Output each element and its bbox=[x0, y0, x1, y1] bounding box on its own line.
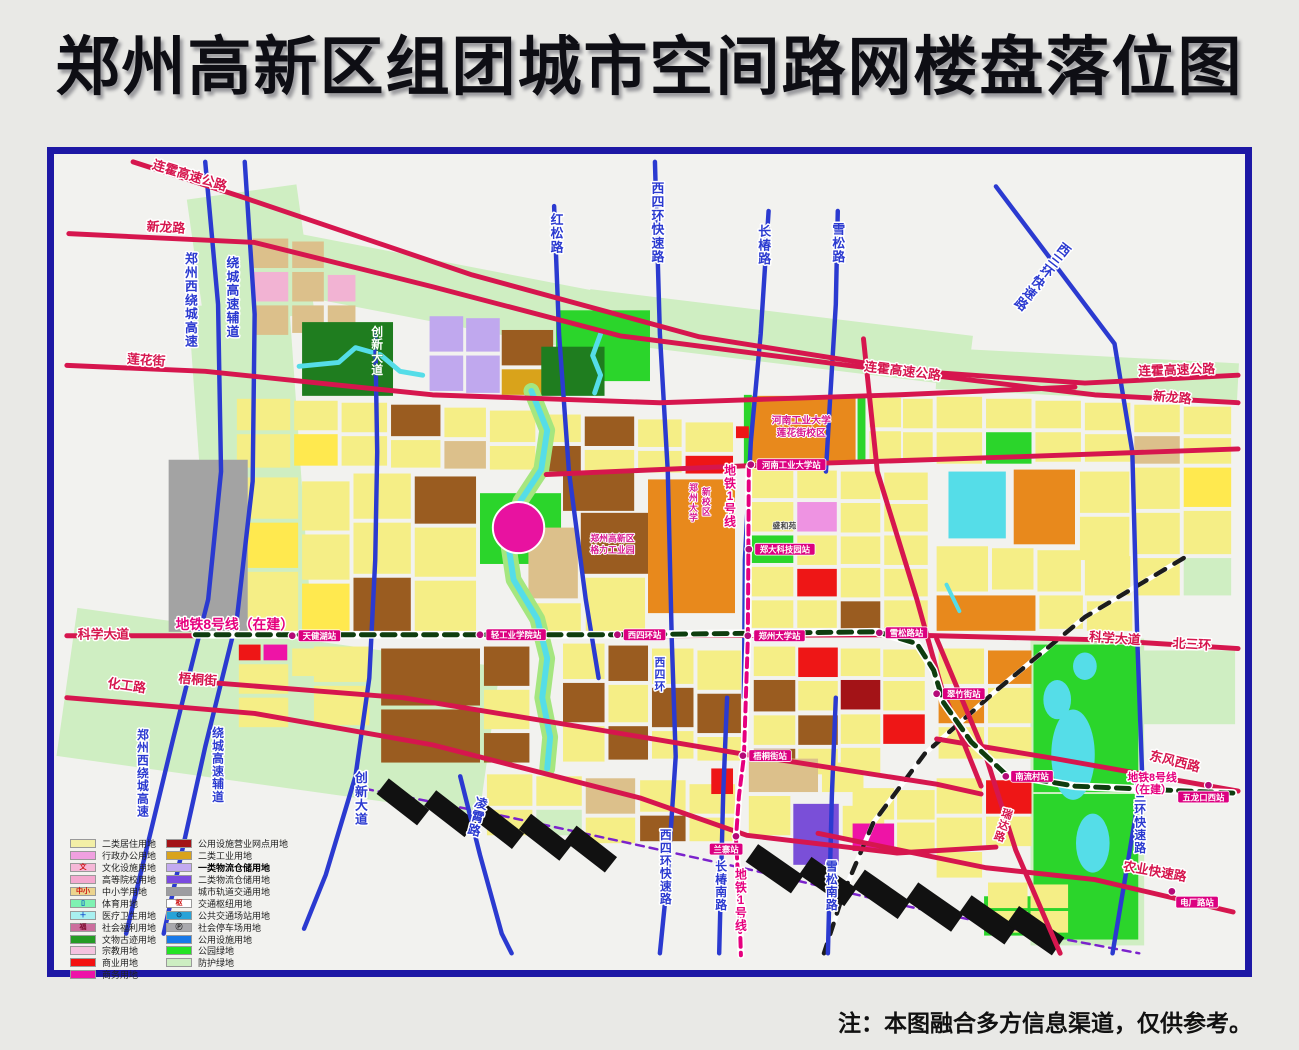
landuse-block bbox=[884, 569, 927, 597]
legend-swatch bbox=[166, 875, 192, 884]
road-label: 盛和苑 bbox=[773, 521, 797, 531]
legend-swatch bbox=[70, 935, 96, 944]
landuse-block bbox=[841, 649, 881, 677]
legend-item: 商业用地 bbox=[70, 957, 156, 969]
landuse-block bbox=[948, 472, 1005, 539]
landuse-block bbox=[937, 818, 982, 849]
legend-item: ⊙公共交通场站用地 bbox=[166, 909, 288, 921]
metro-station-dot bbox=[1168, 887, 1176, 895]
landuse-block bbox=[1184, 558, 1231, 595]
legend-item: 公用设施用地 bbox=[166, 933, 288, 945]
landuse-block bbox=[490, 446, 535, 470]
landuse-block bbox=[294, 434, 337, 465]
landuse-block bbox=[883, 681, 925, 710]
road-label: 新龙路 bbox=[146, 219, 185, 236]
landuse-block bbox=[353, 578, 410, 633]
road-label: 创新大道 bbox=[370, 325, 383, 377]
lake bbox=[1073, 652, 1097, 680]
landuse-block bbox=[466, 356, 500, 393]
road-label: 西四环 bbox=[654, 656, 665, 693]
legend-item: 行政办公用地 bbox=[70, 850, 156, 862]
metro-station-label: 雪松路站 bbox=[890, 628, 924, 638]
metro-station-dot bbox=[476, 631, 484, 639]
landuse-block bbox=[841, 714, 881, 743]
legend-item: 公用设施营业网点用地 bbox=[166, 838, 288, 850]
legend-swatch: ⊙ bbox=[166, 911, 192, 920]
legend-item: 枢交通枢纽用地 bbox=[166, 897, 288, 909]
landuse-block bbox=[752, 600, 794, 628]
legend-swatch bbox=[166, 935, 192, 944]
metro-station-label: 郑大科技园站 bbox=[760, 545, 811, 555]
metro-station-label: 兰寨站 bbox=[714, 845, 740, 855]
legend-swatch bbox=[70, 839, 96, 848]
legend-item: 高等院校用地 bbox=[70, 874, 156, 886]
lake bbox=[1043, 680, 1071, 719]
poster-page: 郑州高新区组团城市空间路网楼盘落位图 天健湖站轻工业学院站西四环站郑州大学站雪松… bbox=[0, 0, 1299, 1050]
landuse-block bbox=[1184, 407, 1231, 435]
legend-swatch bbox=[70, 851, 96, 860]
landuse-block bbox=[797, 502, 837, 531]
landuse-block bbox=[1184, 511, 1231, 554]
legend-swatch bbox=[70, 970, 96, 979]
landuse-block bbox=[1134, 468, 1179, 509]
landuse-block bbox=[586, 578, 645, 633]
landuse-block bbox=[444, 408, 486, 437]
road-label: （在建） bbox=[1128, 782, 1171, 796]
metro-station-label: 天健湖站 bbox=[303, 631, 337, 641]
legend-item: 文物古迹用地 bbox=[70, 933, 156, 945]
landuse-block bbox=[1085, 556, 1130, 595]
landuse-block bbox=[754, 647, 796, 676]
legend-symbol-icon: 福 bbox=[71, 923, 95, 932]
landuse-block bbox=[342, 403, 387, 432]
landuse-block bbox=[798, 715, 838, 744]
landuse-block bbox=[736, 426, 749, 438]
landuse-block bbox=[239, 645, 261, 661]
landuse-block bbox=[841, 472, 881, 500]
legend-item: ＋医疗卫生用地 bbox=[70, 909, 156, 921]
landuse-block bbox=[294, 401, 337, 430]
metro-station-dot bbox=[875, 629, 883, 637]
road-label: 莲花街校区 bbox=[777, 426, 827, 439]
landuse-block bbox=[353, 523, 410, 574]
road-label: 地铁8号线（在建） bbox=[176, 616, 294, 632]
landuse-block bbox=[841, 601, 881, 629]
landuse-block bbox=[1035, 401, 1080, 429]
landuse-block bbox=[487, 774, 532, 805]
landuse-block bbox=[937, 546, 988, 591]
page-title: 郑州高新区组团城市空间路网楼盘落位图 bbox=[0, 16, 1299, 108]
metro-station-label: 南流村站 bbox=[1015, 772, 1049, 782]
legend-item: 宗教用地 bbox=[70, 945, 156, 957]
landuse-block bbox=[302, 584, 349, 633]
landuse-block bbox=[484, 690, 529, 729]
road-label: 河南工业大学 bbox=[772, 413, 831, 426]
landuse-block bbox=[1134, 513, 1179, 554]
road-label: 郑州高新区 bbox=[590, 532, 635, 543]
landuse-block bbox=[1037, 550, 1080, 591]
landuse-block bbox=[253, 272, 289, 301]
metro-station-label: 西四环站 bbox=[628, 630, 662, 640]
landuse-block bbox=[1014, 470, 1075, 545]
road-label: 郑州西绕城高速 bbox=[136, 728, 149, 819]
legend-item: 福社会福利用地 bbox=[70, 921, 156, 933]
metro-station-dot bbox=[739, 752, 747, 760]
legend-label: 商务用地 bbox=[102, 968, 138, 981]
landuse-block bbox=[798, 681, 838, 710]
landuse-block bbox=[585, 416, 634, 445]
landuse-block bbox=[237, 399, 290, 430]
landuse-block bbox=[1134, 405, 1179, 433]
road-label: 科学大道 bbox=[78, 627, 130, 642]
landuse-block bbox=[797, 569, 837, 597]
legend-swatch: 中小 bbox=[70, 887, 96, 896]
landuse-block bbox=[563, 683, 605, 722]
metro-station-dot bbox=[732, 832, 740, 840]
map-frame: 天健湖站轻工业学院站西四环站郑州大学站雪松路站翠竹街站河南工业大学站郑大科技园站… bbox=[47, 147, 1252, 977]
landuse-block bbox=[988, 883, 1028, 909]
metro-station-dot bbox=[1204, 781, 1212, 789]
legend-item: 文文化设施用地 bbox=[70, 862, 156, 874]
road-label: 北三环 bbox=[1172, 636, 1211, 653]
road-label: 连霍高速公路 bbox=[1138, 361, 1216, 379]
metro-station-dot bbox=[933, 690, 941, 698]
landuse-block bbox=[292, 272, 324, 301]
legend-item: 城市轨道交通用地 bbox=[166, 886, 288, 898]
landuse-block bbox=[986, 399, 1031, 428]
legend-item: 公园绿地 bbox=[166, 945, 288, 957]
road-label: 莲花街 bbox=[127, 351, 167, 369]
legend-item: 二类物流仓储用地 bbox=[166, 874, 288, 886]
metro-station-label: 轻工业学院站 bbox=[491, 630, 542, 640]
landuse-block bbox=[749, 796, 791, 835]
landuse-block bbox=[754, 680, 796, 711]
metro-station-dot bbox=[744, 632, 752, 640]
metro-station-dot bbox=[613, 631, 621, 639]
road-label: 红松路 bbox=[551, 212, 564, 254]
landuse-block bbox=[243, 523, 298, 568]
road-label: 创新大道 bbox=[354, 770, 368, 826]
landuse-block bbox=[328, 275, 356, 302]
metro-station-label: 电厂路站 bbox=[1180, 898, 1214, 908]
disclaimer-note: 注：本图融合多方信息渠道，仅供参考。 bbox=[838, 1004, 1252, 1038]
road-label: 地铁8号线 bbox=[1127, 770, 1177, 784]
green-buffer-area bbox=[1140, 650, 1235, 724]
metro-station-label: 五龙口西站 bbox=[1183, 792, 1226, 802]
metro-station-dot bbox=[745, 545, 753, 553]
landuse-block bbox=[937, 595, 1036, 630]
legend-swatch bbox=[166, 851, 192, 860]
legend-swatch bbox=[70, 946, 96, 955]
landuse-block bbox=[841, 680, 881, 709]
landuse-block bbox=[798, 648, 838, 677]
legend-swatch: ＋ bbox=[70, 911, 96, 920]
legend-item: 二类工业用地 bbox=[166, 850, 288, 862]
road-label: 绕城高速辅道 bbox=[226, 255, 239, 339]
legend-swatch bbox=[166, 958, 192, 967]
legend-item: 二类居住用地 bbox=[70, 838, 156, 850]
landuse-block bbox=[302, 534, 349, 579]
road-label: 郑州大学 bbox=[688, 482, 698, 522]
metro-station-label: 梧桐街站 bbox=[753, 751, 787, 761]
landuse-block bbox=[585, 450, 634, 472]
landuse-block bbox=[342, 436, 387, 465]
legend-column-right: 公用设施营业网点用地二类工业用地一类物流仓储用地二类物流仓储用地城市轨道交通用地… bbox=[166, 838, 288, 981]
legend-symbol-icon: 中小 bbox=[71, 887, 95, 896]
legend-item: 商务用地 bbox=[70, 969, 156, 981]
legend-swatch: 枢 bbox=[166, 899, 192, 908]
landuse-block bbox=[883, 714, 925, 743]
landuse-block bbox=[897, 790, 935, 819]
road-label: 西四环快速路 bbox=[659, 828, 672, 906]
legend-swatch bbox=[166, 887, 192, 896]
landuse-block bbox=[353, 474, 410, 519]
road-label: 绕城高速辅道 bbox=[212, 726, 224, 804]
metro-station-dot bbox=[288, 632, 296, 640]
landuse-block bbox=[752, 567, 794, 596]
landuse-block bbox=[415, 581, 476, 632]
landuse-block bbox=[484, 647, 529, 686]
landuse-block bbox=[314, 647, 369, 682]
legend-symbol-icon: ＋ bbox=[71, 911, 95, 920]
landuse-block bbox=[841, 503, 881, 532]
landuse-block bbox=[903, 399, 933, 428]
landuse-block bbox=[884, 473, 927, 501]
road-label: 长椿南路 bbox=[715, 860, 727, 912]
legend-swatch bbox=[166, 863, 192, 872]
legend-item: 防护绿地 bbox=[166, 957, 288, 969]
landuse-block bbox=[858, 395, 866, 464]
legend-item: 中小中小学用地 bbox=[70, 886, 156, 898]
legend-swatch bbox=[70, 958, 96, 967]
legend-column-left: 二类居住用地行政办公用地文文化设施用地高等院校用地中小中小学用地▯体育用地＋医疗… bbox=[70, 838, 156, 981]
landuse-block bbox=[430, 356, 464, 391]
landuse-block bbox=[841, 568, 881, 597]
legend-swatch: ▯ bbox=[70, 899, 96, 908]
landuse-block bbox=[608, 685, 648, 722]
landuse-block bbox=[1080, 472, 1129, 513]
legend-symbol-icon: 文 bbox=[71, 863, 95, 872]
metro-station-dot bbox=[747, 461, 755, 469]
road-label: 郑州西绕城高速 bbox=[184, 251, 198, 349]
landuse-block bbox=[1080, 517, 1129, 560]
lake bbox=[1076, 814, 1110, 873]
road-label: 西四环快速路 bbox=[651, 180, 664, 264]
landuse-block bbox=[1087, 601, 1132, 630]
metro-station-label: 翠竹街站 bbox=[947, 689, 981, 699]
landuse-block bbox=[992, 548, 1034, 589]
landuse-block bbox=[797, 471, 837, 499]
landuse-block bbox=[697, 650, 740, 689]
legend-swatch: 福 bbox=[70, 923, 96, 932]
legend-symbol-icon: Ⓟ bbox=[167, 923, 191, 932]
legend-symbol-icon: 枢 bbox=[167, 899, 191, 908]
landuse-block bbox=[415, 476, 476, 523]
legend-swatch: 文 bbox=[70, 863, 96, 872]
metro-station-dot bbox=[1002, 772, 1010, 780]
legend: 二类居住用地行政办公用地文文化设施用地高等院校用地中小中小学用地▯体育用地＋医疗… bbox=[70, 838, 288, 981]
metro-station-label: 郑州大学站 bbox=[759, 631, 802, 641]
legend-swatch bbox=[166, 839, 192, 848]
landuse-block bbox=[752, 469, 794, 498]
landuse-block bbox=[264, 645, 288, 661]
legend-swatch: Ⓟ bbox=[166, 923, 192, 932]
landmark-circle bbox=[493, 502, 544, 553]
landuse-block bbox=[686, 422, 733, 451]
landuse-block bbox=[1085, 434, 1130, 462]
legend-item: 一类物流仓储用地 bbox=[166, 862, 288, 874]
landuse-block bbox=[1184, 468, 1231, 507]
landuse-block bbox=[697, 694, 740, 733]
legend-symbol-icon: ▯ bbox=[71, 899, 95, 908]
landuse-block bbox=[897, 823, 935, 851]
landuse-block bbox=[841, 536, 881, 564]
legend-item: ▯体育用地 bbox=[70, 897, 156, 909]
legend-swatch bbox=[70, 875, 96, 884]
landuse-block bbox=[797, 600, 837, 628]
landuse-block bbox=[466, 318, 500, 351]
legend-label: 防护绿地 bbox=[198, 956, 234, 969]
legend-item: Ⓟ社会停车场用地 bbox=[166, 921, 288, 933]
road-label: 长椿路 bbox=[758, 224, 771, 266]
landuse-block bbox=[444, 441, 486, 469]
landuse-block bbox=[302, 481, 349, 530]
landuse-block bbox=[253, 305, 289, 334]
landuse-block bbox=[638, 419, 681, 447]
road-label: 梧桐街 bbox=[178, 671, 218, 689]
road-label: 雪松路 bbox=[832, 222, 845, 264]
road-label: 格力工业园 bbox=[590, 544, 635, 555]
road-label: 雪松南路 bbox=[826, 860, 838, 912]
landuse-block bbox=[391, 440, 440, 468]
landuse-block bbox=[903, 432, 933, 460]
landuse-block bbox=[937, 397, 982, 428]
landuse-block bbox=[754, 715, 796, 744]
landuse-block bbox=[391, 405, 440, 436]
landuse-block bbox=[430, 316, 464, 351]
landuse-block bbox=[608, 646, 648, 681]
landuse-block bbox=[490, 411, 535, 442]
legend-swatch bbox=[166, 946, 192, 955]
landuse-block bbox=[415, 528, 476, 577]
metro-station-label: 河南工业大学站 bbox=[762, 460, 821, 470]
road-label: 新校区 bbox=[702, 486, 711, 517]
legend-symbol-icon: ⊙ bbox=[167, 911, 191, 920]
